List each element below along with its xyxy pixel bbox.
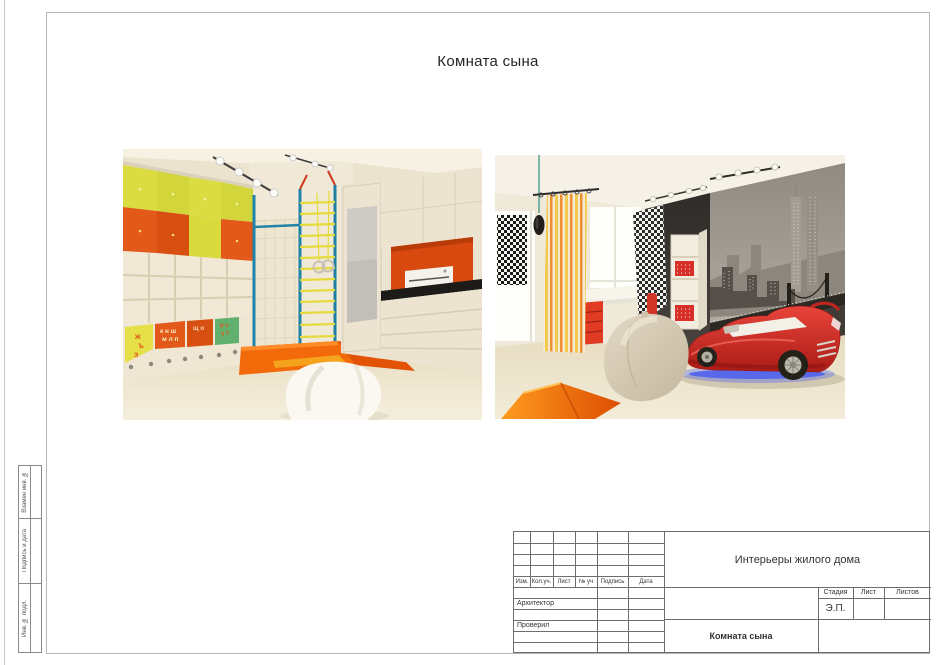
stamp-role-architect: Архитектор bbox=[514, 598, 597, 609]
stamp-stage-label: Стадия bbox=[818, 587, 853, 598]
render-right-image bbox=[495, 155, 845, 419]
svg-text:ж: ж bbox=[134, 332, 141, 341]
stamp-sheet-label: Лист bbox=[853, 587, 884, 598]
checkered-blind bbox=[497, 215, 527, 285]
twin-tower bbox=[807, 191, 818, 291]
page-title: Комната сына bbox=[46, 53, 930, 70]
stamp-col-koluch: Кол.уч. bbox=[530, 576, 553, 587]
svg-text:щ о: щ о bbox=[193, 325, 204, 332]
margin-cell-sign-date: Подпись и дата bbox=[19, 519, 41, 584]
svg-text:э: э bbox=[134, 350, 139, 359]
stamp-sheets-label: Листов bbox=[884, 587, 931, 598]
svg-text:к н ш: к н ш bbox=[160, 328, 176, 335]
paper-edge bbox=[4, 0, 5, 665]
shelf-unit: ж ъ э к н ш м л п щ о р с у т bbox=[123, 161, 253, 381]
cube-shelf bbox=[671, 229, 707, 331]
stamp-project-title: Интерьеры жилого дома bbox=[664, 532, 931, 587]
margin-label-text: Подпись и дата bbox=[22, 529, 28, 572]
title-block: Изм. Кол.уч. Лист № уч Подпись Дата Архи… bbox=[513, 531, 930, 653]
stamp-col-list: Лист bbox=[553, 576, 575, 587]
margin-label: Подпись и дата bbox=[19, 519, 31, 583]
svg-text:м л п: м л п bbox=[162, 336, 179, 343]
render-left-svg: ж ъ э к н ш м л п щ о р с у т bbox=[123, 149, 482, 420]
window-left bbox=[495, 211, 535, 341]
margin-label-text: Инв. № подл. bbox=[22, 600, 28, 637]
margin-label-text: Взамен инв. № bbox=[22, 471, 28, 513]
svg-text:у т: у т bbox=[221, 331, 229, 337]
twin-tower bbox=[791, 197, 801, 292]
wardrobe bbox=[341, 167, 482, 373]
margin-cells: Взамен инв. № Подпись и дата Инв. № подл… bbox=[18, 465, 42, 653]
climbing-panel bbox=[255, 219, 301, 363]
stamp-col-izm: Изм. bbox=[514, 576, 530, 587]
margin-cell-inv-orig: Инв. № подл. bbox=[19, 584, 41, 652]
margin-cell-replace-inv: Взамен инв. № bbox=[19, 466, 41, 519]
stamp-role-checked: Проверил bbox=[514, 620, 597, 631]
stamp-col-podpis: Подпись bbox=[597, 576, 628, 587]
stamp-stage-value: Э.П. bbox=[818, 598, 853, 619]
stamp-col-nuch: № уч bbox=[575, 576, 597, 587]
stamp-col-data: Дата bbox=[628, 576, 664, 587]
svg-text:ъ: ъ bbox=[138, 341, 144, 350]
render-right-svg bbox=[495, 155, 845, 419]
stamp-sheet-title: Комната сына bbox=[664, 619, 818, 652]
svg-text:р с: р с bbox=[220, 323, 229, 329]
margin-label: Инв. № подл. bbox=[19, 584, 31, 652]
render-left-image: ж ъ э к н ш м л п щ о р с у т bbox=[123, 149, 482, 420]
margin-label: Взамен инв. № bbox=[19, 466, 31, 518]
